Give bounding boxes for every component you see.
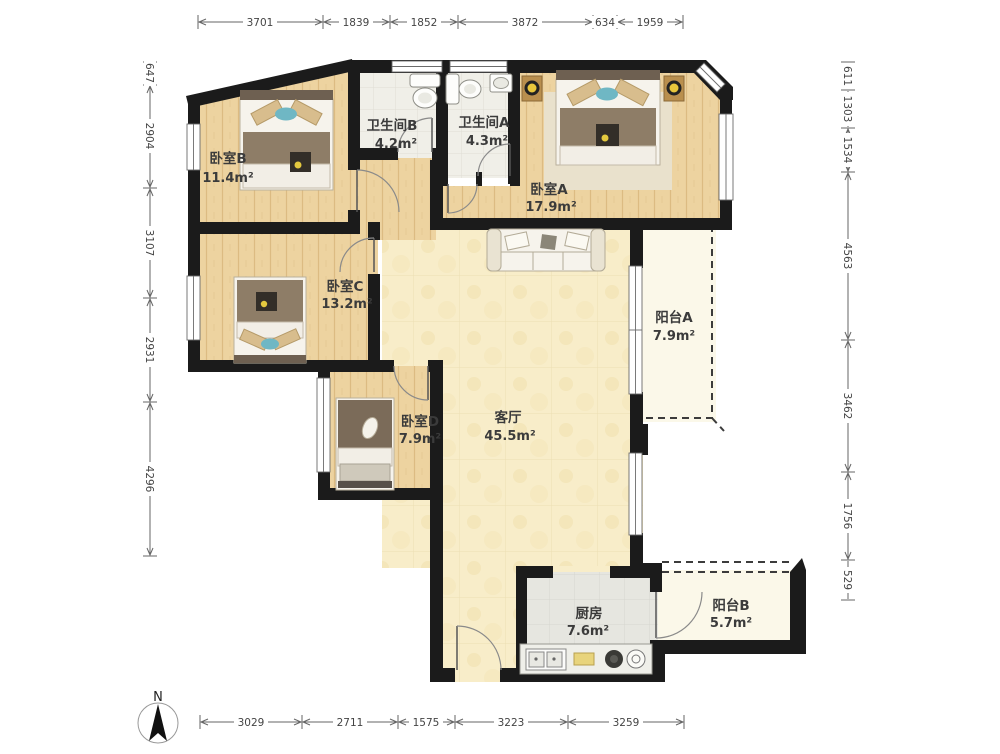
sink-bathroom-a	[490, 74, 512, 92]
dim-right-2: 1303	[841, 96, 853, 123]
wall-kitchen-top-left	[516, 566, 553, 578]
bed-bedroom-c	[234, 277, 306, 363]
wall-living-right-2	[630, 533, 643, 568]
window-bedroom-b	[187, 124, 200, 170]
bedroom-a-area: 17.9m²	[525, 200, 576, 215]
bedroom-c-name: 卧室C	[327, 278, 364, 295]
window-bedroom-c	[187, 276, 200, 340]
wall-bedroom-c-right-lower	[368, 274, 380, 372]
dim-left-3: 3107	[143, 230, 155, 257]
dim-left-5: 4296	[143, 466, 155, 493]
dimensions-bottom: 3029 2711 1575 3223 3259	[200, 715, 684, 729]
window-bedroom-d	[317, 378, 330, 472]
balcony-a-name: 阳台A	[655, 309, 693, 326]
kitchen-counter	[520, 644, 652, 674]
bathroom-a-name: 卫生间A	[459, 114, 510, 131]
wall-right-upper	[720, 92, 732, 116]
bathroom-b-name: 卫生间B	[367, 117, 418, 134]
wall-balcony-a-divider-upper	[630, 228, 643, 268]
wall-bathroom-divider-foot	[432, 148, 448, 186]
kitchen-name: 厨房	[576, 605, 603, 622]
dim-top-5: 634	[595, 17, 615, 29]
bedroom-b-area: 11.4m²	[202, 171, 253, 186]
wall-bedroom-a-bottom	[430, 218, 720, 230]
dim-left-2: 2904	[143, 123, 155, 150]
balcony-a-floor	[640, 230, 716, 422]
window-balcony-a-slider	[629, 266, 642, 394]
dim-right-6: 1756	[841, 503, 853, 530]
dim-bottom-5: 3259	[613, 717, 640, 729]
wall-hall-left	[430, 360, 443, 682]
wall-left-1	[188, 100, 200, 126]
wall-right-lower	[720, 198, 732, 230]
dim-left-4: 2931	[143, 337, 155, 364]
wall-bedroom-b-right-upper	[348, 60, 360, 170]
dim-bottom-4: 3223	[498, 717, 525, 729]
bedroom-d-name: 卧室D	[401, 413, 439, 430]
balcony-a-dashed-corner	[712, 418, 724, 431]
dim-top-1: 3701	[247, 17, 274, 29]
dim-top-4: 3872	[512, 17, 539, 29]
dim-left-1: 647	[143, 63, 155, 83]
window-living-right	[629, 453, 642, 535]
floor-plan-drawing: 卧室B 11.4m² 卫生间B 4.2m² 卫生间A 4.3m² 卧室A 17.…	[0, 0, 1000, 750]
wall-living-right-1	[630, 424, 648, 455]
living-room-area: 45.5m²	[484, 429, 535, 444]
dim-bottom-1: 3029	[238, 717, 265, 729]
balcony-a-area: 7.9m²	[653, 329, 695, 344]
dim-right-5: 3462	[841, 393, 853, 420]
dimensions-left: 647 2904 3107 2931 4296	[143, 60, 157, 556]
bedroom-b-name: 卧室B	[209, 150, 246, 167]
dim-top-6: 1959	[637, 17, 664, 29]
dim-bottom-3: 1575	[413, 717, 440, 729]
floor-plan-page: 卧室B 11.4m² 卫生间B 4.2m² 卫生间A 4.3m² 卧室A 17.…	[0, 0, 1000, 750]
sofa	[487, 229, 605, 271]
dim-top-3: 1852	[411, 17, 438, 29]
wall-bedroom-bc-divider	[188, 222, 360, 234]
bedroom-a-name: 卧室A	[530, 181, 568, 198]
dim-right-1: 611	[841, 66, 853, 86]
bedroom-c-area: 13.2m²	[321, 297, 372, 312]
wall-balcony-b-right	[790, 558, 806, 654]
window-bathroom-b-top	[392, 61, 442, 72]
bed-bedroom-b	[240, 90, 333, 190]
hallway-floor	[443, 490, 516, 682]
balcony-b-area: 5.7m²	[710, 616, 752, 631]
wall-living-right-3	[630, 563, 662, 578]
wall-bedroom-d-left-upper	[318, 360, 330, 380]
north-arrow-icon: N	[138, 690, 178, 743]
wall-left-2	[188, 170, 200, 276]
dimensions-top: 3701 1839 1852 3872 634 1959	[198, 15, 683, 29]
kitchen-area: 7.6m²	[567, 624, 609, 639]
dim-right-3: 1534	[841, 137, 853, 164]
bathroom-b-area: 4.2m²	[375, 137, 417, 152]
bed-bedroom-d	[336, 398, 394, 490]
window-bedroom-a-right	[719, 114, 733, 200]
bedroom-d-area: 7.9m²	[399, 432, 441, 447]
dim-right-4: 4563	[841, 243, 853, 270]
bathroom-a-area: 4.3m²	[466, 134, 508, 149]
wall-bathroom-divider	[436, 60, 448, 150]
wall-balcony-b-bottom	[662, 640, 804, 654]
dimensions-right: 611 1303 1534 4563 3462 1756 529	[841, 62, 855, 600]
dim-right-7: 529	[841, 570, 853, 590]
balcony-b-name: 阳台B	[712, 597, 749, 614]
wall-pier-2	[476, 172, 482, 186]
dim-bottom-2: 2711	[337, 717, 364, 729]
living-room-name: 客厅	[494, 409, 523, 426]
wall-bedroom-c-right-upper	[368, 222, 380, 240]
wall-bottom-left-of-entry	[430, 668, 455, 682]
dim-top-2: 1839	[343, 17, 370, 29]
window-bathroom-a-top	[450, 61, 507, 72]
